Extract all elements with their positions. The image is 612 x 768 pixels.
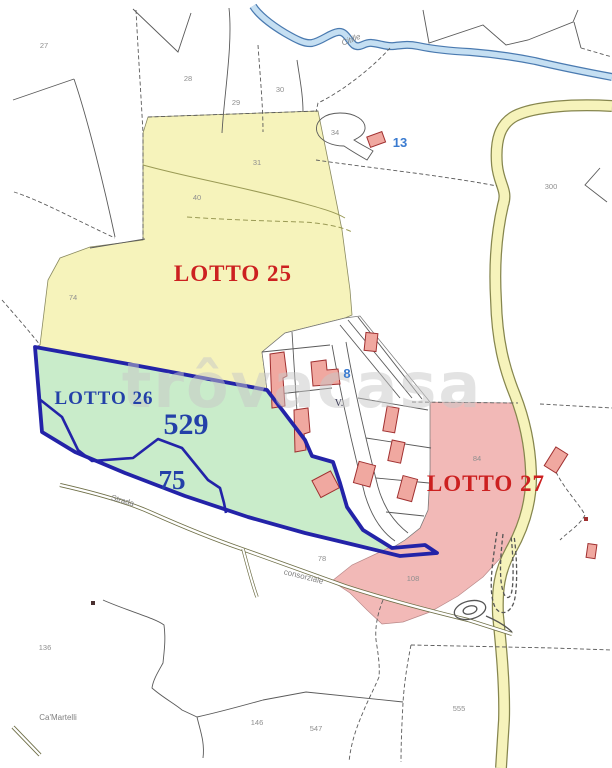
building xyxy=(544,447,568,473)
parcel-number: 31 xyxy=(253,158,261,167)
parcel-number: 300 xyxy=(545,182,558,191)
label-area-529: 529 xyxy=(164,408,209,441)
parcel-number: 30 xyxy=(276,85,284,94)
parcel-number: 547 xyxy=(310,724,323,733)
cadastral-map-image: trôvacasa LOTTO 25 LOTTO 26 529 75 LOTTO… xyxy=(0,0,612,768)
parcel-number: 78 xyxy=(318,554,326,563)
label-v-mark: V. xyxy=(335,398,343,409)
label-road-strada: Strada xyxy=(110,493,136,508)
label-lotto-27: LOTTO 27 xyxy=(427,471,545,496)
parcel-number: 40 xyxy=(193,193,201,202)
parcel-number: 27 xyxy=(40,41,48,50)
boundary-marker xyxy=(91,601,95,605)
parcel-number: 28 xyxy=(184,74,192,83)
parcel-number: 84 xyxy=(473,454,481,463)
label-area-75: 75 xyxy=(159,465,186,495)
cadastral-map: trôvacasa LOTTO 25 LOTTO 26 529 75 LOTTO… xyxy=(0,0,612,768)
parcel-number: 29 xyxy=(232,98,240,107)
building-mark xyxy=(584,517,588,521)
building xyxy=(586,544,597,559)
parcel-number: 34 xyxy=(331,128,339,137)
label-building-8: 8 xyxy=(343,366,350,381)
label-lotto-25: LOTTO 25 xyxy=(174,261,292,286)
label-building-13: 13 xyxy=(393,135,407,150)
label-lotto-26: LOTTO 26 xyxy=(55,388,154,409)
parcel-number: 136 xyxy=(39,643,52,652)
building-13 xyxy=(367,132,386,148)
parcel-number: 74 xyxy=(69,293,77,302)
parcel-number: 555 xyxy=(453,704,466,713)
label-locality: Ca'Martelli xyxy=(39,713,77,722)
parcel-number: 108 xyxy=(407,574,420,583)
parcel-number: 146 xyxy=(251,718,264,727)
